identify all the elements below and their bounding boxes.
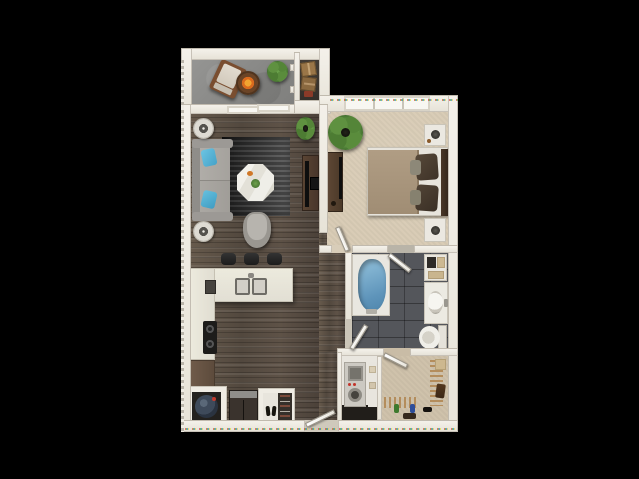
media-console xyxy=(302,155,319,211)
render-noise-artifact xyxy=(330,99,458,101)
storage-door-hinge xyxy=(290,86,294,93)
balcony-sliding-door-panel xyxy=(257,104,290,112)
sink-basin xyxy=(235,278,250,295)
bar-stool xyxy=(221,253,236,265)
accent-pillow xyxy=(410,160,421,175)
accent-pillow xyxy=(410,190,421,205)
shoe-black xyxy=(423,407,432,412)
render-noise-artifact xyxy=(185,428,457,430)
pantry-shelves xyxy=(278,393,292,423)
vanity xyxy=(424,282,448,324)
water-heater-base xyxy=(192,392,221,421)
dresser-decor xyxy=(331,201,336,206)
wall-outer-bottom-right xyxy=(338,420,458,432)
washer-door xyxy=(348,388,362,402)
wall-bathroom-west xyxy=(345,252,352,320)
washer-knob xyxy=(348,383,351,386)
accent-chair-seat xyxy=(247,214,267,240)
sink-faucet xyxy=(248,273,254,278)
washer-knob xyxy=(353,383,356,386)
shoe-green xyxy=(394,404,399,413)
balcony-sliding-door-panel xyxy=(227,106,260,114)
storage-door-hinge xyxy=(290,64,294,71)
bedroom-tv xyxy=(339,157,342,199)
wall-laundry-closet-divider xyxy=(377,356,382,420)
toilet-bowl xyxy=(419,326,440,349)
living-room-plant xyxy=(296,117,315,140)
closet-floor-item xyxy=(403,413,416,419)
toilet xyxy=(417,323,448,351)
bathtub xyxy=(358,259,386,311)
accent-chair xyxy=(243,212,271,248)
hall-wood-floor xyxy=(319,245,345,352)
water-heater-valve xyxy=(212,397,216,401)
fire-pit-table xyxy=(236,71,260,95)
wall-storage-divider xyxy=(294,52,300,106)
nightstand-lamp xyxy=(431,130,440,139)
wall-bedroom-bottom-a xyxy=(319,245,332,253)
end-table-lamp xyxy=(193,118,214,139)
wall-outer-right xyxy=(448,95,458,432)
sofa xyxy=(192,139,233,221)
nightstand xyxy=(424,124,446,146)
bed xyxy=(367,147,448,216)
garment-bag xyxy=(435,383,446,398)
shoe-blue xyxy=(410,404,415,413)
end-table-lamp xyxy=(193,221,214,242)
wall-balcony-top xyxy=(181,48,330,60)
wall-outer-left-texture xyxy=(181,104,184,432)
basket xyxy=(428,271,444,279)
sofa-armrest xyxy=(192,139,233,148)
tub-faucet xyxy=(366,309,377,314)
wall-bedroom-bottom-b xyxy=(352,245,388,253)
bar-stool xyxy=(267,253,282,265)
bathtub-surround xyxy=(352,254,390,316)
cardboard-box xyxy=(300,76,317,92)
closet-storage-box xyxy=(435,359,446,370)
wall-bathroom-bottom-left xyxy=(337,348,384,356)
wall-bathroom-bottom-right xyxy=(410,348,458,356)
pantry-items xyxy=(280,395,290,421)
box-tape xyxy=(304,82,315,85)
stacked-washer-dryer xyxy=(344,362,366,407)
wall-laundry-west xyxy=(337,352,342,428)
fridge-door-seam xyxy=(243,400,244,421)
wall-outer-bottom-left xyxy=(181,420,305,432)
cardboard-box xyxy=(300,61,317,77)
nightstand xyxy=(424,218,446,242)
floor-plan-image xyxy=(0,0,639,479)
countertop-appliance xyxy=(205,280,216,294)
wall-bedroom-bottom-c xyxy=(414,245,458,253)
towel-stack xyxy=(369,366,376,373)
bar-stool xyxy=(244,253,259,265)
sink-basin xyxy=(252,278,267,295)
towel-stack xyxy=(369,382,376,389)
laundry-shelf xyxy=(368,362,377,407)
bedroom-plant xyxy=(328,115,363,150)
dryer-door xyxy=(348,366,363,381)
table-plant xyxy=(251,179,260,188)
basket xyxy=(437,257,445,268)
nightstand-decor xyxy=(427,139,431,143)
box-tape xyxy=(307,63,311,75)
storage-small-item xyxy=(304,91,313,97)
storage-bin xyxy=(427,257,436,268)
vanity-sink xyxy=(428,291,443,314)
dresser xyxy=(327,152,343,212)
refrigerator xyxy=(229,390,258,422)
wall-balcony-left-texture xyxy=(181,60,184,108)
balcony-potted-plant xyxy=(267,61,288,82)
burner xyxy=(206,325,214,333)
tv xyxy=(305,161,309,207)
laundry-floor-shadow xyxy=(342,405,377,420)
nightstand-lamp xyxy=(431,226,440,235)
sofa-back xyxy=(192,139,200,221)
cooktop xyxy=(203,321,217,354)
kitchen-sink xyxy=(234,275,268,298)
table-decor xyxy=(247,171,253,176)
wall-living-bedroom-divider xyxy=(319,104,328,233)
bathroom-door-threshold xyxy=(388,245,414,253)
kitchen-counter xyxy=(190,268,215,360)
sofa-armrest xyxy=(192,212,233,221)
linen-shelf xyxy=(424,254,447,281)
burner xyxy=(206,340,214,348)
